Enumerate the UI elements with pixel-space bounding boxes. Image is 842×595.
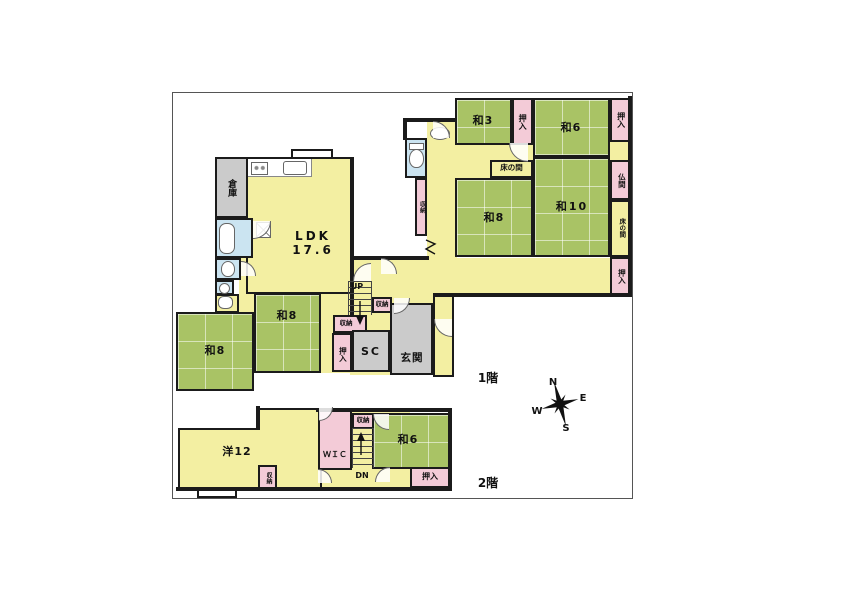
wall xyxy=(448,410,452,491)
closet-shuno-small-label: 収納 xyxy=(260,467,275,488)
corridor-floor xyxy=(427,120,457,260)
stairs-up-label: UP xyxy=(344,282,370,292)
closet-oshiire-wa3-label: 押入 xyxy=(513,104,532,140)
closet-oshiire-right-label: 押入 xyxy=(613,259,629,293)
toilet-icon xyxy=(221,261,235,277)
closet-oshiire-wa6-label: 押入 xyxy=(612,102,630,138)
kitchen-sink-icon xyxy=(283,161,307,175)
room-wa8-mid-label: 和8 xyxy=(261,308,313,324)
wall xyxy=(256,406,260,430)
wall xyxy=(433,293,632,297)
floorplan-image: 倉庫 LDK 17.6 和3 押入 和6 押入 床の間 和8 和10 仏間 床の… xyxy=(0,0,842,595)
room-wic-label: ＷＩＣ xyxy=(316,448,354,462)
room-wa6-top-label: 和6 xyxy=(547,120,595,136)
closet-shuno-strip-label: 収納 xyxy=(415,190,427,224)
room-sc-label: SC xyxy=(354,344,388,360)
closet-oshiire-hall-label: 押入 xyxy=(334,340,350,368)
bay-window xyxy=(291,149,333,159)
washbasin-icon xyxy=(219,283,230,294)
wall xyxy=(316,408,452,412)
wall xyxy=(403,120,407,140)
room-wa6-2f-label: 和6 xyxy=(384,433,432,448)
room-wa10-label: 和10 xyxy=(546,199,598,215)
ldk-size: 17.6 xyxy=(292,244,334,258)
room-wa8-mid xyxy=(254,293,321,373)
closet-shuno-top-label: 収納 xyxy=(353,415,373,427)
room-storage-label: 倉庫 xyxy=(219,165,243,211)
room-genkan-label: 玄関 xyxy=(392,351,432,365)
bathtub-icon xyxy=(219,223,235,254)
vanity-icon xyxy=(218,296,233,309)
ldk-name: LDK xyxy=(295,230,331,244)
floor1-label: 1階 xyxy=(470,371,506,387)
stairs-dn-label: DN xyxy=(350,470,374,481)
room-wa8-right-label: 和8 xyxy=(470,210,518,226)
room-wa8-left-label: 和8 xyxy=(191,343,239,359)
closet-shuno-hall-label: 収納 xyxy=(334,318,358,330)
closet-shuno-stairs-label: 収納 xyxy=(373,299,391,311)
tokonoma-inner-label: 床の間 xyxy=(491,162,532,175)
closet-oshiire-2f-label: 押入 xyxy=(412,470,448,484)
room-wa3-label: 和3 xyxy=(459,113,507,129)
floor2-label: 2階 xyxy=(470,476,506,492)
stairs-2f-dup xyxy=(352,428,374,468)
wall xyxy=(403,118,457,122)
room-ldk-label: LDK 17.6 xyxy=(282,229,344,259)
room-butsuma-label: 仏間 xyxy=(613,164,629,196)
stove-icon xyxy=(251,162,268,175)
tokonoma-right-label: 床の間 xyxy=(613,204,629,252)
room-yo12-label: 洋12 xyxy=(206,445,268,460)
wall xyxy=(176,487,452,491)
toilet-icon xyxy=(409,149,424,168)
wall xyxy=(350,256,429,260)
